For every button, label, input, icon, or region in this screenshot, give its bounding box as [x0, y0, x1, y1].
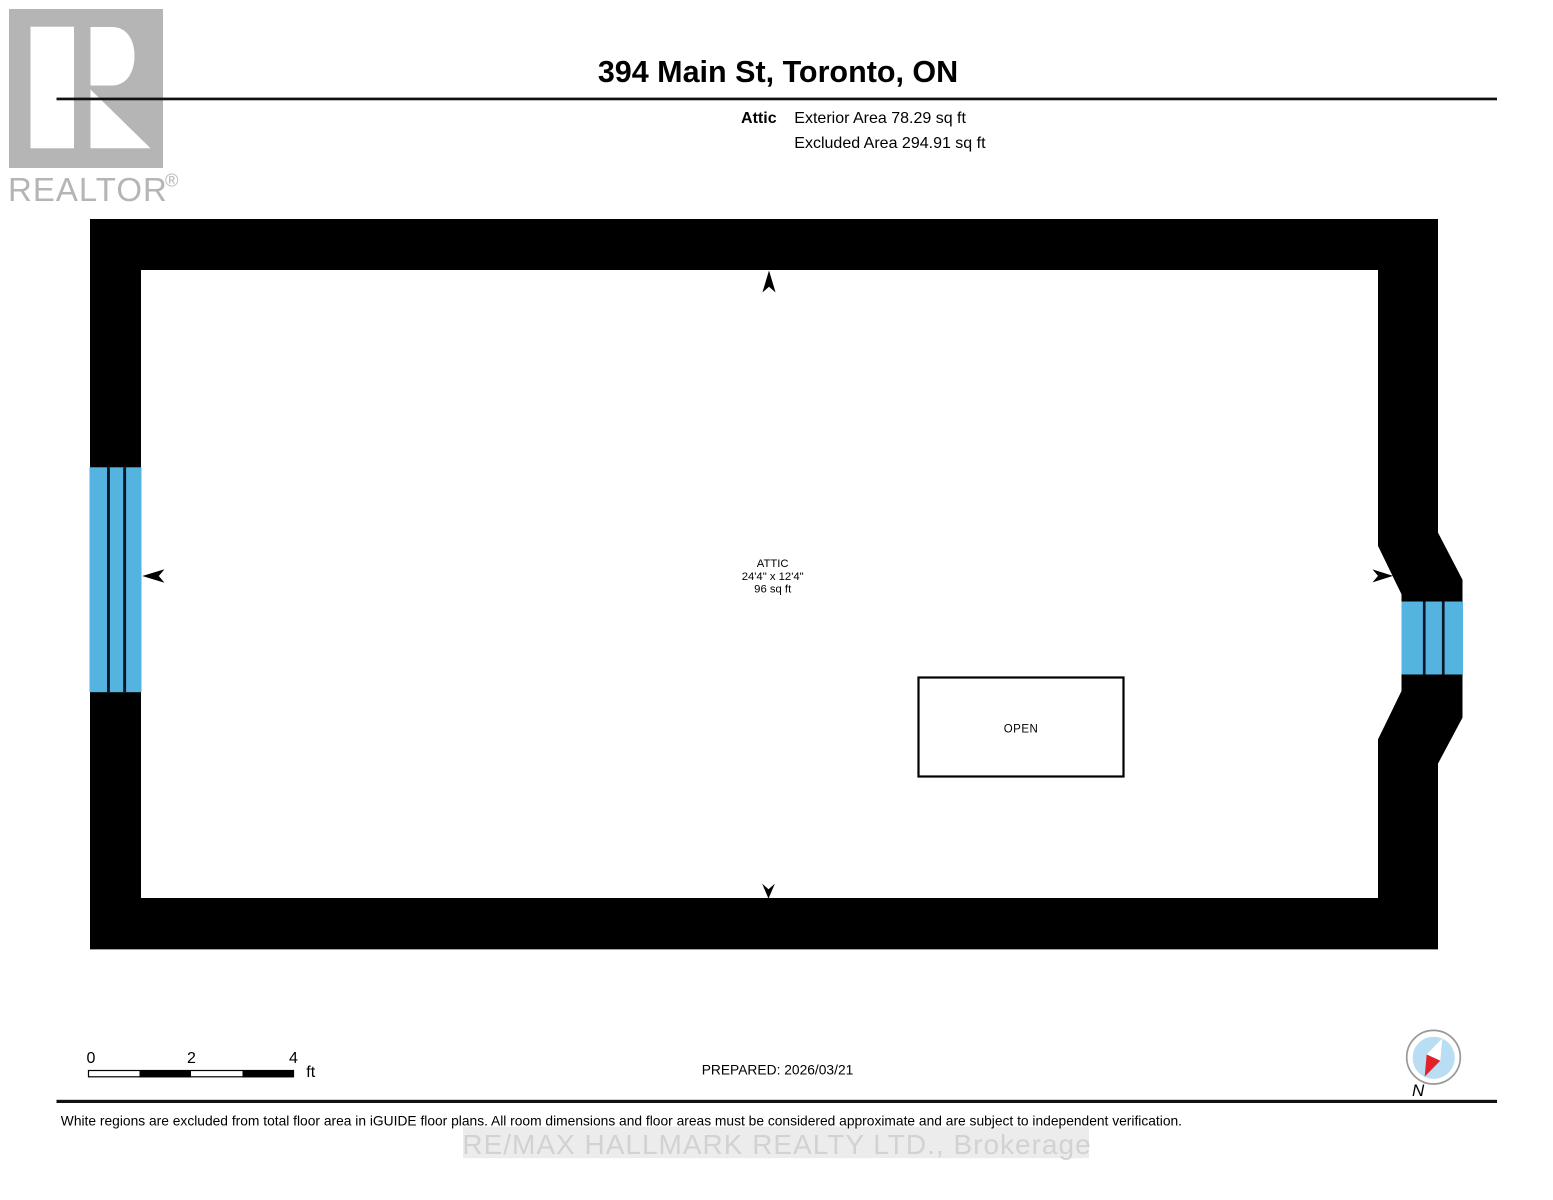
svg-text:PREPARED: 2026/03/21: PREPARED: 2026/03/21	[702, 1062, 854, 1077]
svg-text:Exterior Area 78.29 sq ft: Exterior Area 78.29 sq ft	[794, 110, 966, 127]
svg-text:4: 4	[289, 1050, 298, 1067]
svg-text:RE/MAX HALLMARK REALTY LTD., B: RE/MAX HALLMARK REALTY LTD., Brokerage	[462, 1129, 1091, 1160]
svg-text:0: 0	[87, 1050, 96, 1067]
svg-text:Excluded Area 294.91 sq ft: Excluded Area 294.91 sq ft	[794, 135, 986, 152]
svg-text:2: 2	[187, 1050, 196, 1067]
svg-text:ATTIC: ATTIC	[757, 558, 789, 570]
svg-text:Attic: Attic	[741, 110, 777, 127]
svg-text:24'4" x 12'4": 24'4" x 12'4"	[742, 571, 804, 583]
svg-text:394 Main St, Toronto, ON: 394 Main St, Toronto, ON	[598, 55, 958, 89]
svg-text:REALTOR: REALTOR	[8, 171, 168, 208]
svg-text:®: ®	[165, 170, 179, 191]
svg-text:OPEN: OPEN	[1004, 724, 1039, 736]
svg-text:N: N	[1412, 1081, 1425, 1100]
svg-text:96 sq ft: 96 sq ft	[754, 583, 792, 595]
svg-text:White regions are excluded fro: White regions are excluded from total fl…	[61, 1114, 1182, 1129]
svg-text:ft: ft	[306, 1064, 315, 1081]
